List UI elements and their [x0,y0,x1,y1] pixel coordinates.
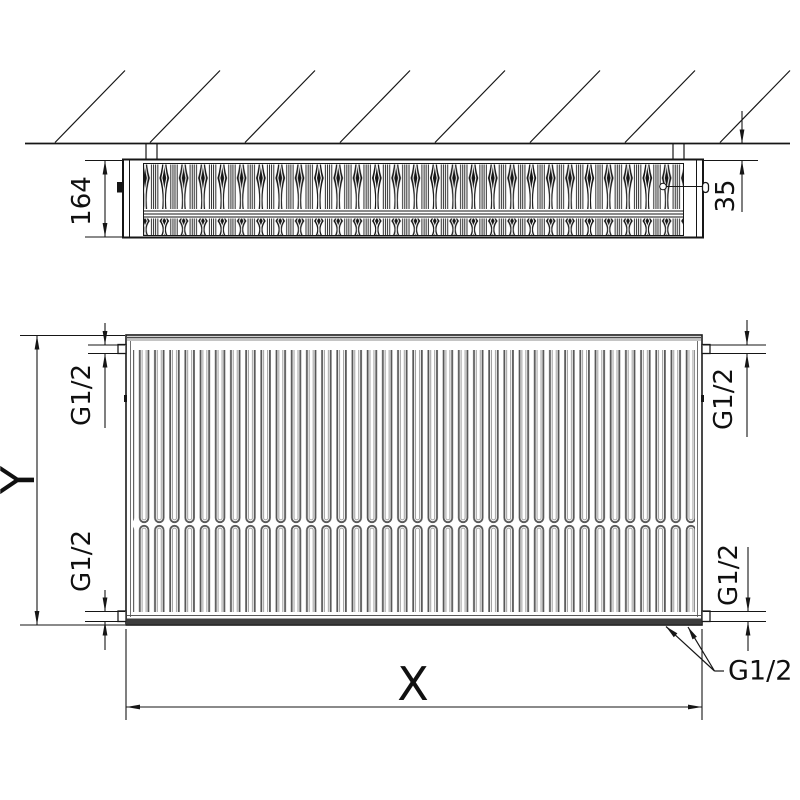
radiator-technical-drawing: 164 35 Y X G1/2 G1/2 G1/2 G1/2 G1/2 [0,0,800,800]
top-view-radiator-body [117,160,709,238]
side-weld-nub-left [124,395,127,402]
dim-label-wall-clearance: 35 [713,179,739,212]
air-vent-dot [660,183,667,190]
left-plug [117,182,124,193]
thread-label-bottom-right: G1/2 [716,544,742,606]
thread-label-bottom-center: G1/2 [728,658,792,685]
thread-label-top-right: G1/2 [711,368,737,430]
dim-label-depth: 164 [69,176,95,226]
dim-label-width-x: X [397,661,429,707]
g12-leader-bottom-center [666,627,724,672]
mounting-brackets [146,144,684,160]
dim-label-height-y: Y [0,466,41,494]
thread-label-bottom-left: G1/2 [69,530,95,592]
air-vent-knob [703,183,709,193]
front-panel-grooves [133,350,695,612]
thread-label-top-left: G1/2 [69,364,95,426]
front-view-radiator-body [118,335,710,625]
wall-hatch-lines [55,71,790,143]
top-view-fin-core [144,164,684,236]
side-weld-nub-right [701,395,704,402]
wall-section [25,71,790,160]
